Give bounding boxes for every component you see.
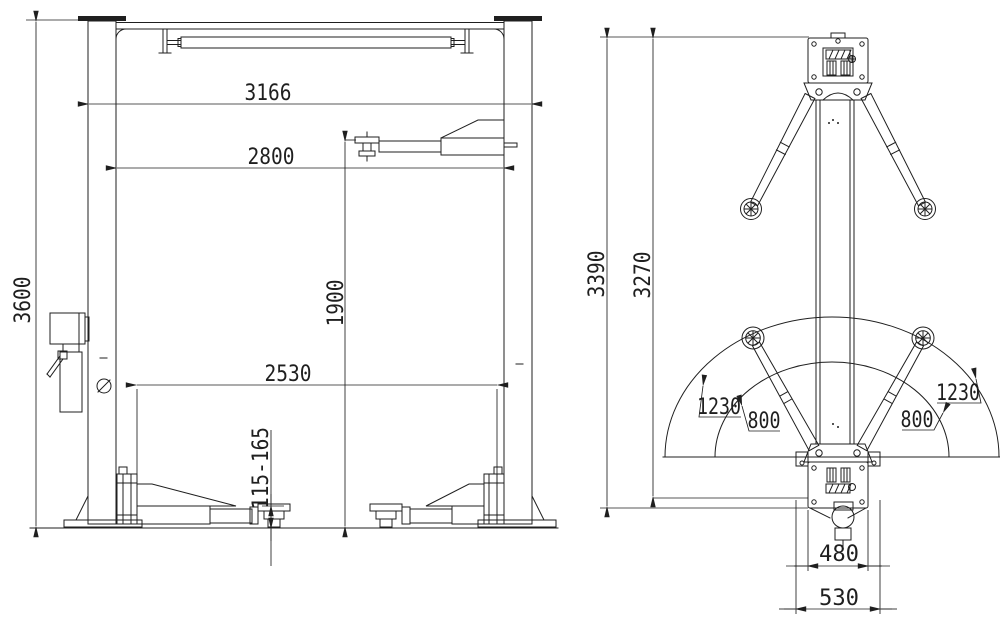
dim-pad-height-range: 115-165 — [249, 427, 274, 509]
dim-reach-max-right: 1230 — [936, 381, 980, 406]
right-column-cap — [494, 16, 542, 21]
dim-reach-min-left: 800 — [748, 409, 781, 434]
carriage-left — [117, 467, 137, 524]
dim-overall-width: 3166 — [245, 81, 292, 106]
two-post-lift-technical-drawing: 3600 3166 2800 1900 2530 115-165 3390 32… — [0, 0, 1000, 629]
plan-arm-upper-left — [741, 94, 815, 220]
dim-lift-height: 1900 — [324, 280, 349, 327]
dim-overall-height: 3600 — [11, 277, 36, 324]
left-column — [78, 16, 126, 524]
base-plates — [30, 496, 558, 528]
top-carriage — [804, 33, 872, 100]
dim-reach-max-left: 1230 — [697, 395, 741, 420]
dim-baseplate-width: 530 — [819, 586, 859, 611]
dim-inner-width: 2800 — [248, 145, 295, 170]
dim-base-width: 480 — [819, 542, 859, 567]
dim-arm-span: 2530 — [265, 362, 312, 387]
arm-pad-right — [370, 504, 402, 511]
raised-arm-pad — [355, 137, 379, 143]
carriage-right — [484, 467, 504, 524]
front-view — [26, 16, 558, 566]
plan-arm-upper-right — [861, 94, 935, 220]
raised-arm — [355, 120, 517, 161]
drawing-canvas: 3600 3166 2800 1900 2530 115-165 3390 32… — [0, 0, 1000, 629]
dim-total-height: 3390 — [585, 251, 610, 298]
overhead-safety-bar — [159, 29, 473, 53]
right-column — [494, 16, 542, 524]
power-unit — [47, 313, 89, 412]
bottom-carriage — [796, 444, 880, 547]
column-plan — [816, 100, 854, 443]
dim-column-height: 3270 — [631, 252, 656, 299]
lift-arm-right — [370, 484, 484, 527]
plan-view — [600, 33, 1000, 614]
dim-reach-min-right: 800 — [901, 408, 934, 433]
